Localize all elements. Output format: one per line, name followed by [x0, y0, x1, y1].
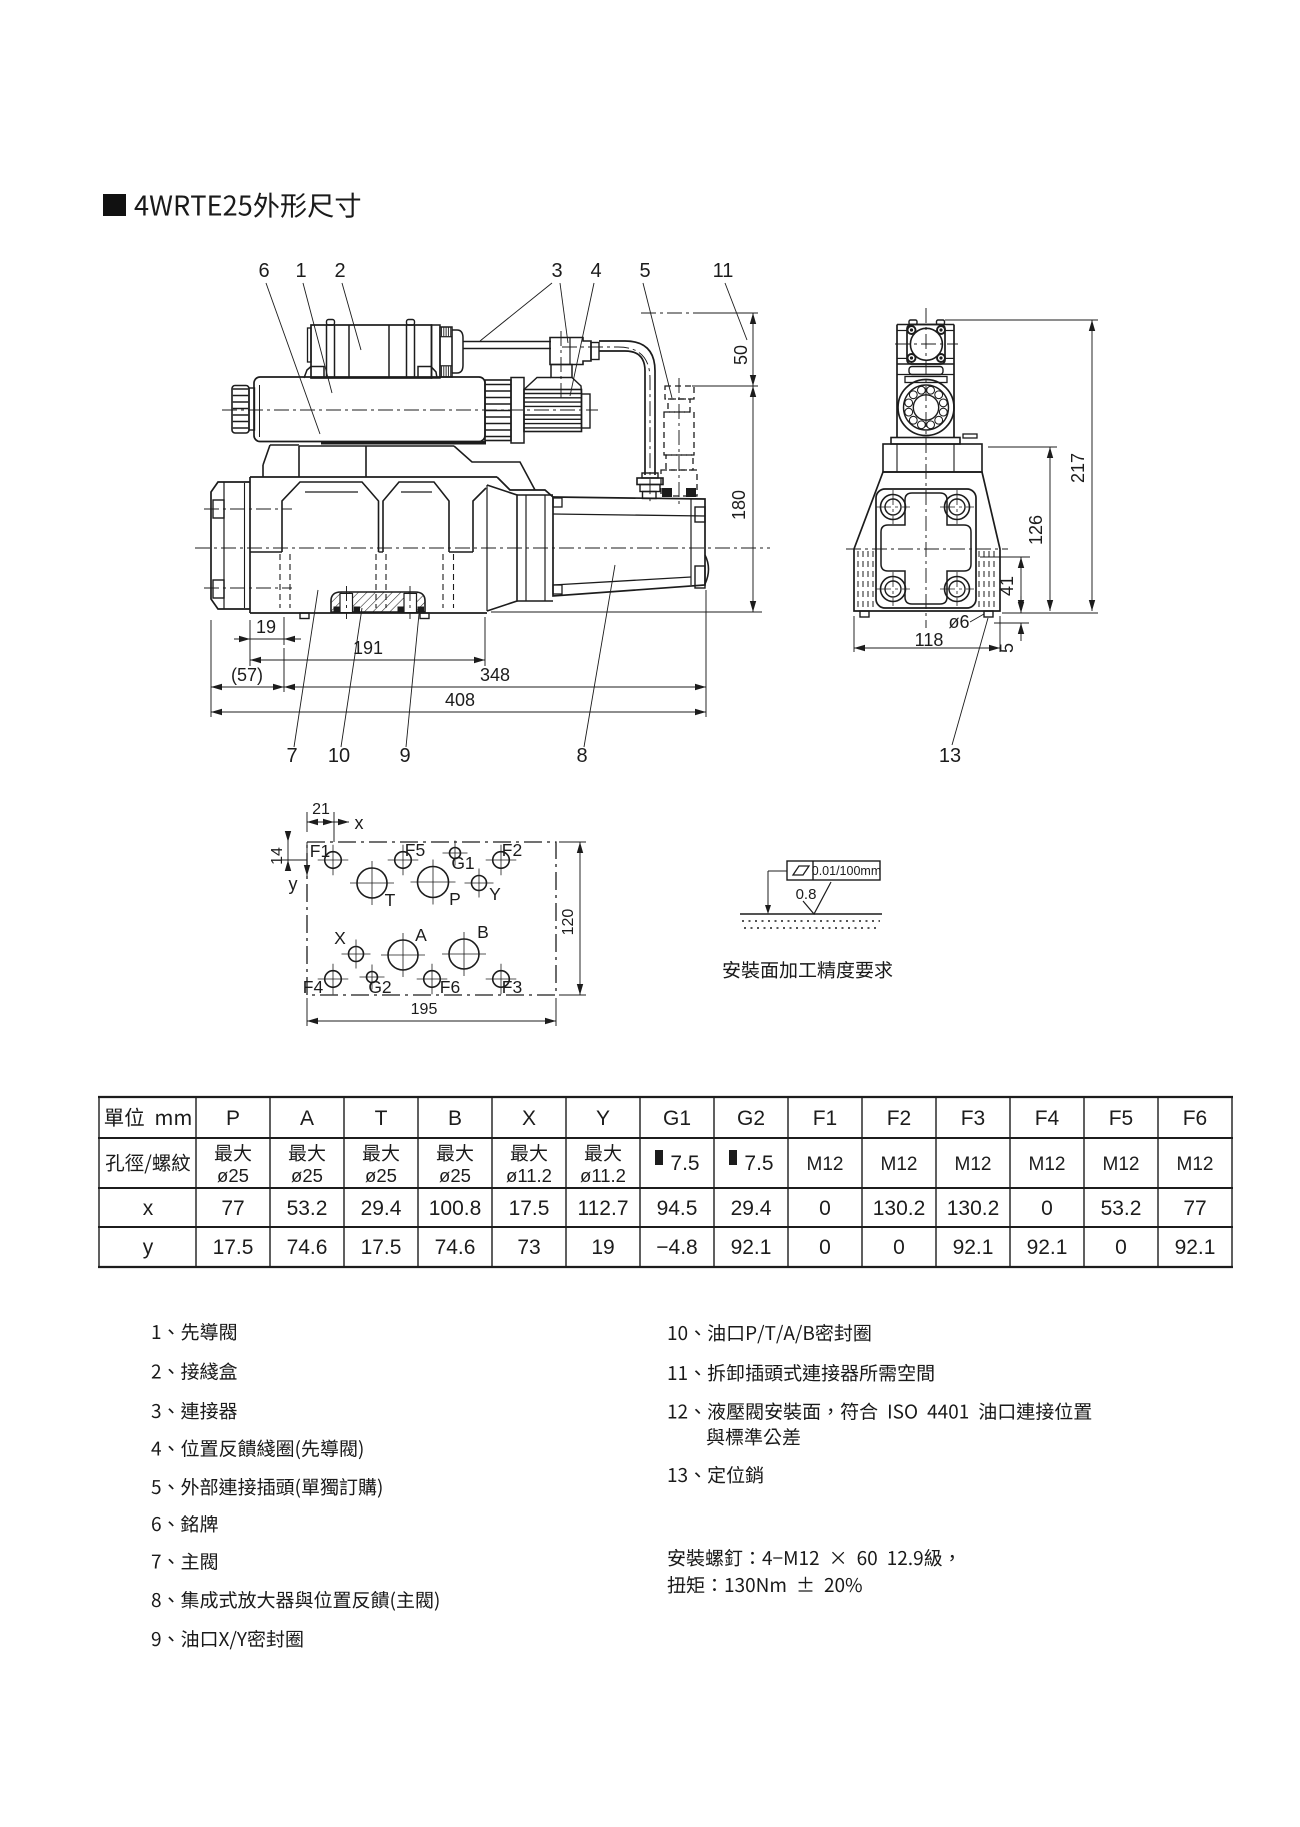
svg-text:B: B — [448, 1107, 462, 1130]
svg-text:77: 77 — [1183, 1197, 1206, 1220]
svg-text:8: 8 — [576, 745, 587, 767]
svg-text:195: 195 — [411, 1001, 438, 1018]
svg-text:Y: Y — [489, 884, 501, 904]
svg-text:4: 4 — [590, 260, 601, 282]
svg-text:17.5: 17.5 — [509, 1197, 550, 1220]
svg-text:53.2: 53.2 — [1101, 1197, 1142, 1220]
svg-text:180: 180 — [729, 490, 749, 520]
svg-text:94.5: 94.5 — [657, 1197, 698, 1220]
svg-text:41: 41 — [997, 576, 1017, 596]
svg-text:14: 14 — [269, 847, 286, 865]
svg-text:ø11.2: ø11.2 — [506, 1165, 552, 1186]
svg-text:F6: F6 — [1183, 1107, 1208, 1130]
svg-text:13: 13 — [939, 745, 961, 767]
svg-text:F1: F1 — [813, 1107, 838, 1130]
svg-text:5: 5 — [639, 260, 650, 282]
svg-text:77: 77 — [221, 1197, 244, 1220]
svg-text:M12: M12 — [1029, 1154, 1066, 1175]
svg-text:T: T — [385, 890, 396, 910]
svg-text:29.4: 29.4 — [731, 1197, 772, 1220]
svg-text:F5: F5 — [1109, 1107, 1134, 1130]
svg-text:P: P — [449, 889, 461, 909]
svg-text:M12: M12 — [807, 1154, 844, 1175]
svg-text:0: 0 — [1041, 1197, 1053, 1220]
svg-text:F4: F4 — [303, 977, 324, 997]
svg-text:B: B — [477, 922, 489, 942]
svg-text:0: 0 — [819, 1236, 831, 1259]
svg-text:130.2: 130.2 — [873, 1197, 926, 1220]
svg-text:74.6: 74.6 — [287, 1236, 328, 1259]
svg-text:F6: F6 — [440, 977, 460, 997]
svg-text:ø25: ø25 — [291, 1165, 323, 1186]
svg-text:y: y — [143, 1236, 154, 1259]
svg-text:7.5: 7.5 — [670, 1152, 699, 1175]
svg-text:P: P — [226, 1107, 240, 1130]
svg-text:(57): (57) — [231, 665, 263, 685]
svg-text:A: A — [415, 925, 427, 945]
svg-text:1: 1 — [295, 260, 306, 282]
svg-text:G2: G2 — [368, 977, 391, 997]
svg-text:17.5: 17.5 — [213, 1236, 254, 1259]
svg-text:100.8: 100.8 — [429, 1197, 482, 1220]
svg-text:M12: M12 — [881, 1154, 918, 1175]
svg-text:73: 73 — [517, 1236, 540, 1259]
svg-text:0: 0 — [893, 1236, 905, 1259]
svg-text:F2: F2 — [502, 840, 522, 860]
svg-text:A: A — [300, 1107, 314, 1130]
svg-text:ø11.2: ø11.2 — [580, 1165, 626, 1186]
svg-text:7.5: 7.5 — [744, 1152, 773, 1175]
svg-text:M12: M12 — [1177, 1154, 1214, 1175]
svg-text:F4: F4 — [1035, 1107, 1060, 1130]
svg-text:Y: Y — [596, 1107, 610, 1130]
svg-text:120: 120 — [560, 909, 577, 936]
svg-text:F2: F2 — [887, 1107, 912, 1130]
svg-text:130.2: 130.2 — [947, 1197, 1000, 1220]
svg-text:217: 217 — [1068, 453, 1088, 483]
svg-text:19: 19 — [256, 617, 276, 637]
svg-text:53.2: 53.2 — [287, 1197, 328, 1220]
svg-text:x: x — [143, 1197, 154, 1220]
svg-text:X: X — [522, 1107, 536, 1130]
svg-text:ø25: ø25 — [439, 1165, 471, 1186]
svg-text:G1: G1 — [451, 853, 474, 873]
svg-text:50: 50 — [731, 345, 751, 365]
svg-text:F1: F1 — [310, 841, 330, 861]
svg-text:M12: M12 — [955, 1154, 992, 1175]
svg-text:0: 0 — [1115, 1236, 1127, 1259]
svg-text:0.8: 0.8 — [796, 886, 817, 903]
svg-text:29.4: 29.4 — [361, 1197, 402, 1220]
svg-text:10: 10 — [328, 745, 350, 767]
svg-text:G2: G2 — [737, 1107, 765, 1130]
svg-text:92.1: 92.1 — [731, 1236, 772, 1259]
svg-text:0.01/100mm: 0.01/100mm — [812, 864, 881, 878]
svg-text:T: T — [375, 1107, 388, 1130]
svg-text:112.7: 112.7 — [578, 1197, 629, 1220]
svg-text:x: x — [355, 813, 364, 833]
svg-text:G1: G1 — [663, 1107, 691, 1130]
svg-text:7: 7 — [286, 745, 297, 767]
svg-text:ø6: ø6 — [948, 612, 969, 632]
svg-text:9: 9 — [399, 745, 410, 767]
svg-text:y: y — [289, 874, 298, 894]
svg-text:92.1: 92.1 — [953, 1236, 994, 1259]
svg-text:21: 21 — [312, 801, 330, 818]
svg-text:2: 2 — [334, 260, 345, 282]
svg-text:126: 126 — [1026, 515, 1046, 545]
svg-text:3: 3 — [551, 260, 562, 282]
svg-text:92.1: 92.1 — [1175, 1236, 1216, 1259]
svg-text:F3: F3 — [961, 1107, 986, 1130]
svg-text:F5: F5 — [405, 840, 425, 860]
svg-text:19: 19 — [591, 1236, 614, 1259]
svg-text:ø25: ø25 — [365, 1165, 397, 1186]
svg-text:348: 348 — [480, 665, 510, 685]
svg-text:0: 0 — [819, 1197, 831, 1220]
svg-text:92.1: 92.1 — [1027, 1236, 1068, 1259]
svg-text:−4.8: −4.8 — [656, 1236, 697, 1259]
svg-text:6: 6 — [258, 260, 269, 282]
svg-text:118: 118 — [915, 630, 944, 650]
svg-text:ø25: ø25 — [217, 1165, 249, 1186]
svg-text:17.5: 17.5 — [361, 1236, 402, 1259]
svg-text:191: 191 — [353, 638, 383, 658]
svg-text:X: X — [334, 928, 346, 948]
svg-text:F3: F3 — [502, 977, 522, 997]
svg-text:408: 408 — [445, 690, 475, 710]
svg-text:11: 11 — [713, 260, 734, 282]
svg-text:74.6: 74.6 — [435, 1236, 476, 1259]
svg-text:M12: M12 — [1103, 1154, 1140, 1175]
